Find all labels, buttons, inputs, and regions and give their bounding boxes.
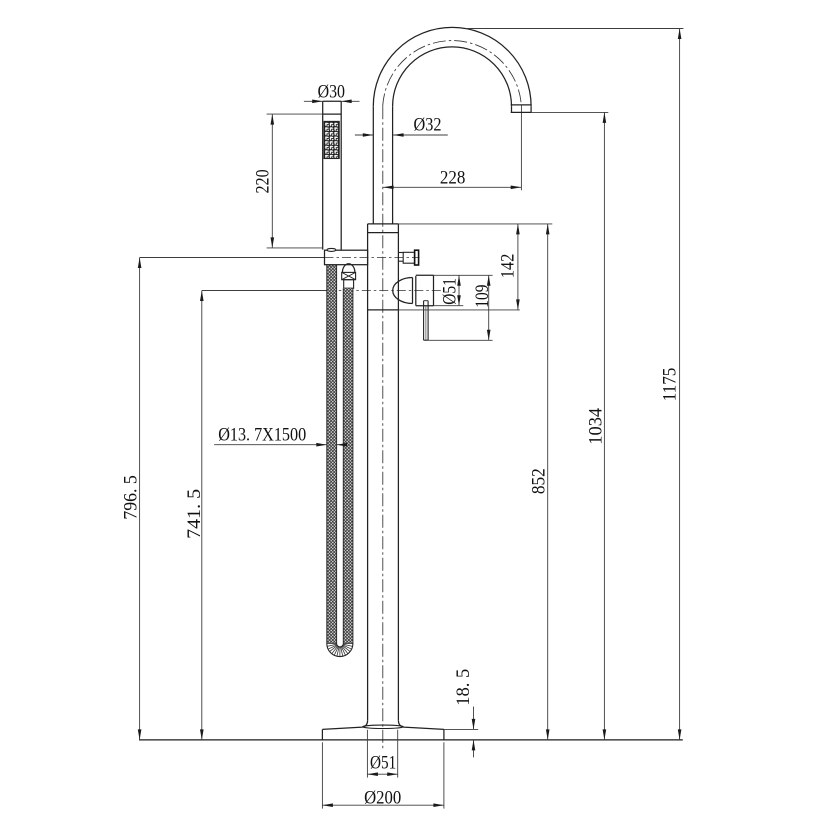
svg-text:18. 5: 18. 5 — [454, 669, 474, 706]
svg-text:Ø30: Ø30 — [318, 83, 345, 103]
svg-text:796. 5: 796. 5 — [121, 475, 141, 519]
svg-text:Ø51: Ø51 — [440, 278, 460, 305]
svg-text:1175: 1175 — [661, 368, 681, 402]
svg-text:1034: 1034 — [586, 408, 606, 445]
svg-text:852: 852 — [529, 468, 549, 494]
svg-text:Ø13. 7X1500: Ø13. 7X1500 — [218, 426, 306, 446]
svg-text:741. 5: 741. 5 — [185, 489, 205, 539]
svg-text:Ø32: Ø32 — [414, 116, 442, 136]
svg-text:228: 228 — [440, 169, 466, 189]
svg-text:Ø51: Ø51 — [370, 753, 396, 773]
svg-text:109: 109 — [473, 285, 493, 308]
svg-text:220: 220 — [254, 169, 274, 193]
svg-text:142: 142 — [498, 254, 518, 279]
svg-text:Ø200: Ø200 — [364, 789, 401, 809]
